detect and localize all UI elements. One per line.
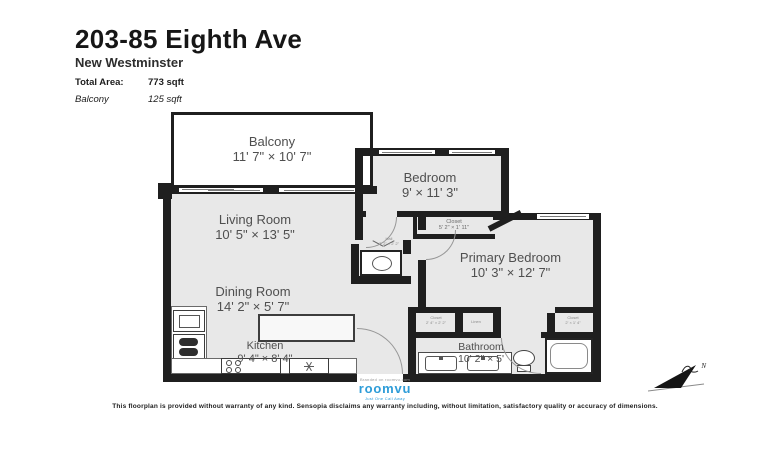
room-label-balcony: Balcony11' 7" × 10' 7" [192,134,352,165]
balcony-area-value: 125 sqft [148,94,182,105]
window [449,150,495,154]
room-label-hall: Hall7' 2" × 2' 2" [369,236,409,247]
wall [163,186,171,382]
wall [351,276,411,284]
balcony-area-row: Balcony125 sqft [75,94,182,105]
wall [501,148,509,218]
bathtub-icon [545,338,593,374]
room-label-primary-bedroom: Primary Bedroom10' 3" × 12' 7" [433,250,588,281]
roomvu-tagline: Just One Call Away [285,396,485,401]
roomvu-wordmark: roomvu [285,382,485,396]
north-arrow-icon: N [648,362,708,398]
total-area-row: Total Area:773 sqft [75,77,184,88]
balcony-area-label: Balcony [75,94,148,105]
floor-plan: Balcony11' 7" × 10' 7" Living Room10' 5"… [163,110,603,388]
room-label-dining: Dining Room14' 2" × 5' 7" [178,284,328,315]
room-label-primary-closet: Closet2' × 1' 4" [553,315,593,326]
window [379,150,435,154]
page-subtitle: New Westminster [75,55,183,70]
oven-icon [173,334,205,360]
total-area-label: Total Area: [75,77,148,88]
room-label-closet: Closet5' 2" × 1' 11" [415,219,493,232]
wall [418,260,426,307]
room-label-entry-closet: Closet2' 4" × 2' 2" [417,315,455,326]
roomvu-logo: Branded on roomvu.com roomvu Just One Ca… [285,377,485,401]
total-area-value: 773 sqft [148,77,184,88]
room-label-kitchen: Kitchen9' 4" × 8' 4" [205,340,325,366]
page-title: 203-85 Eighth Ave [75,24,302,55]
wall [408,332,501,338]
sliding-door [179,188,263,192]
room-label-bathroom: Bathroom10' 2" × 5' [421,341,541,366]
kitchen-island [258,314,355,342]
floorplan-page: { "header": { "title": "203-85 Eighth Av… [0,0,770,450]
washer-icon [360,250,402,276]
wall [408,307,416,382]
wall [555,307,601,313]
window [279,188,359,192]
disclaimer-text: This floorplan is provided without warra… [0,403,770,410]
window [537,214,589,219]
room-label-linen: Linen [459,319,493,324]
wall [593,213,601,382]
room-label-bedroom: Bedroom9' × 11' 3" [360,170,500,201]
room-label-living: Living Room10' 5" × 13' 5" [180,212,330,243]
